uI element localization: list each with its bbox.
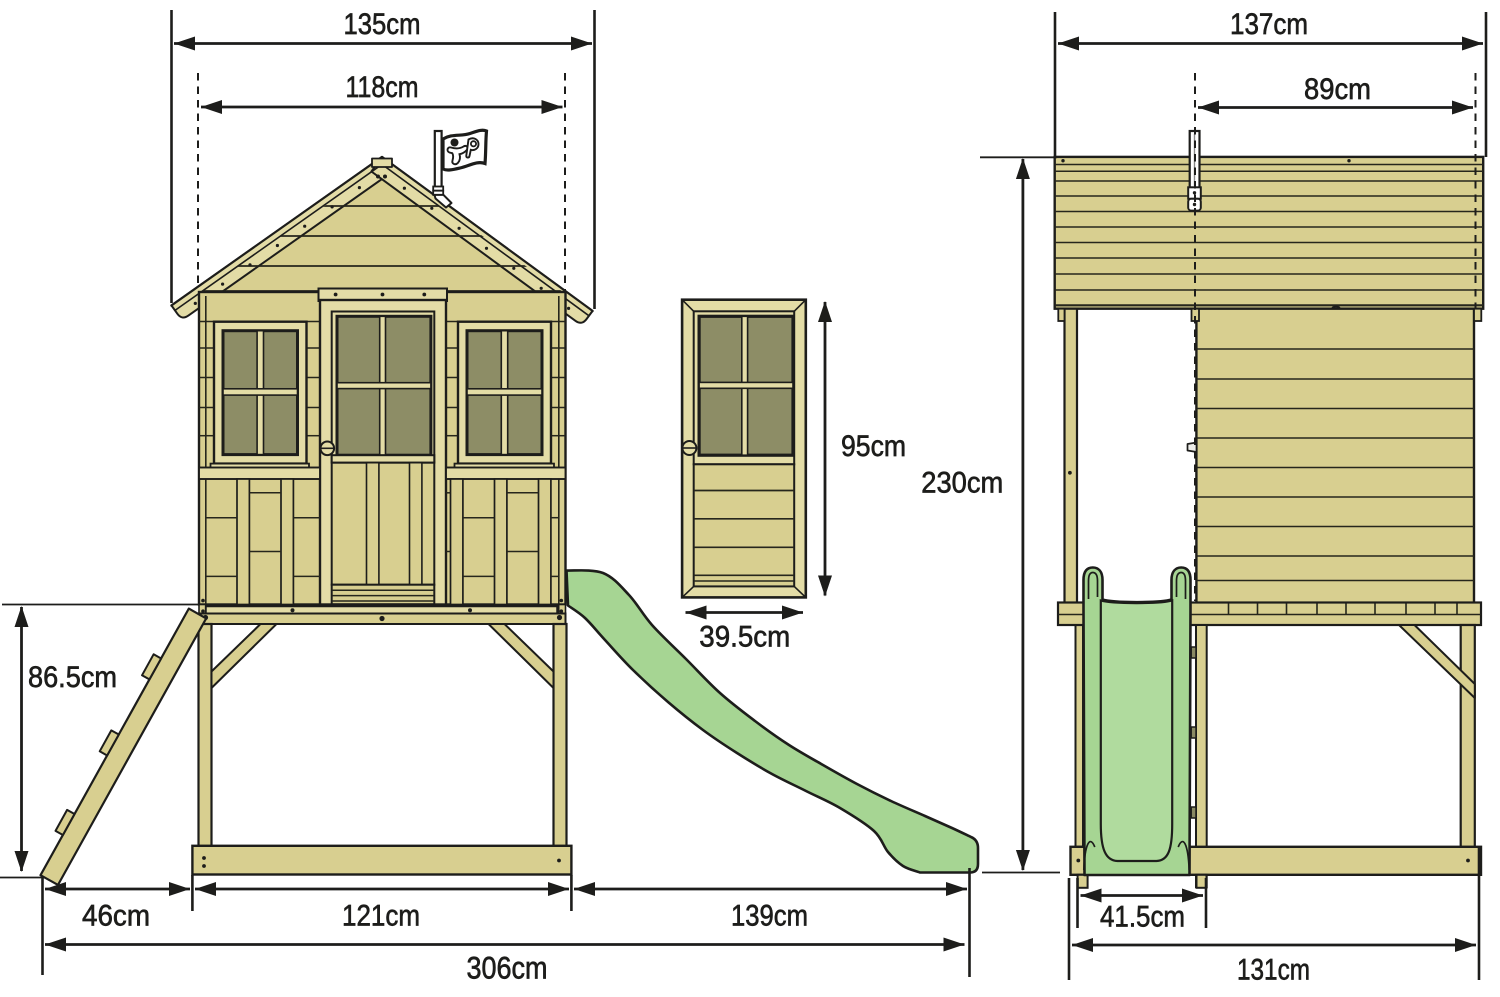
svg-text:137cm: 137cm [1230,8,1308,41]
svg-text:89cm: 89cm [1304,73,1371,106]
svg-text:86.5cm: 86.5cm [28,661,117,694]
svg-text:121cm: 121cm [342,900,420,933]
svg-text:131cm: 131cm [1237,954,1310,987]
svg-text:41.5cm: 41.5cm [1100,901,1185,934]
svg-text:230cm: 230cm [921,467,1003,500]
svg-text:139cm: 139cm [731,900,808,933]
svg-text:95cm: 95cm [841,430,906,463]
svg-text:46cm: 46cm [82,900,150,933]
svg-text:39.5cm: 39.5cm [699,621,790,654]
svg-text:135cm: 135cm [344,8,421,41]
svg-text:118cm: 118cm [346,71,419,104]
svg-text:306cm: 306cm [467,950,548,986]
